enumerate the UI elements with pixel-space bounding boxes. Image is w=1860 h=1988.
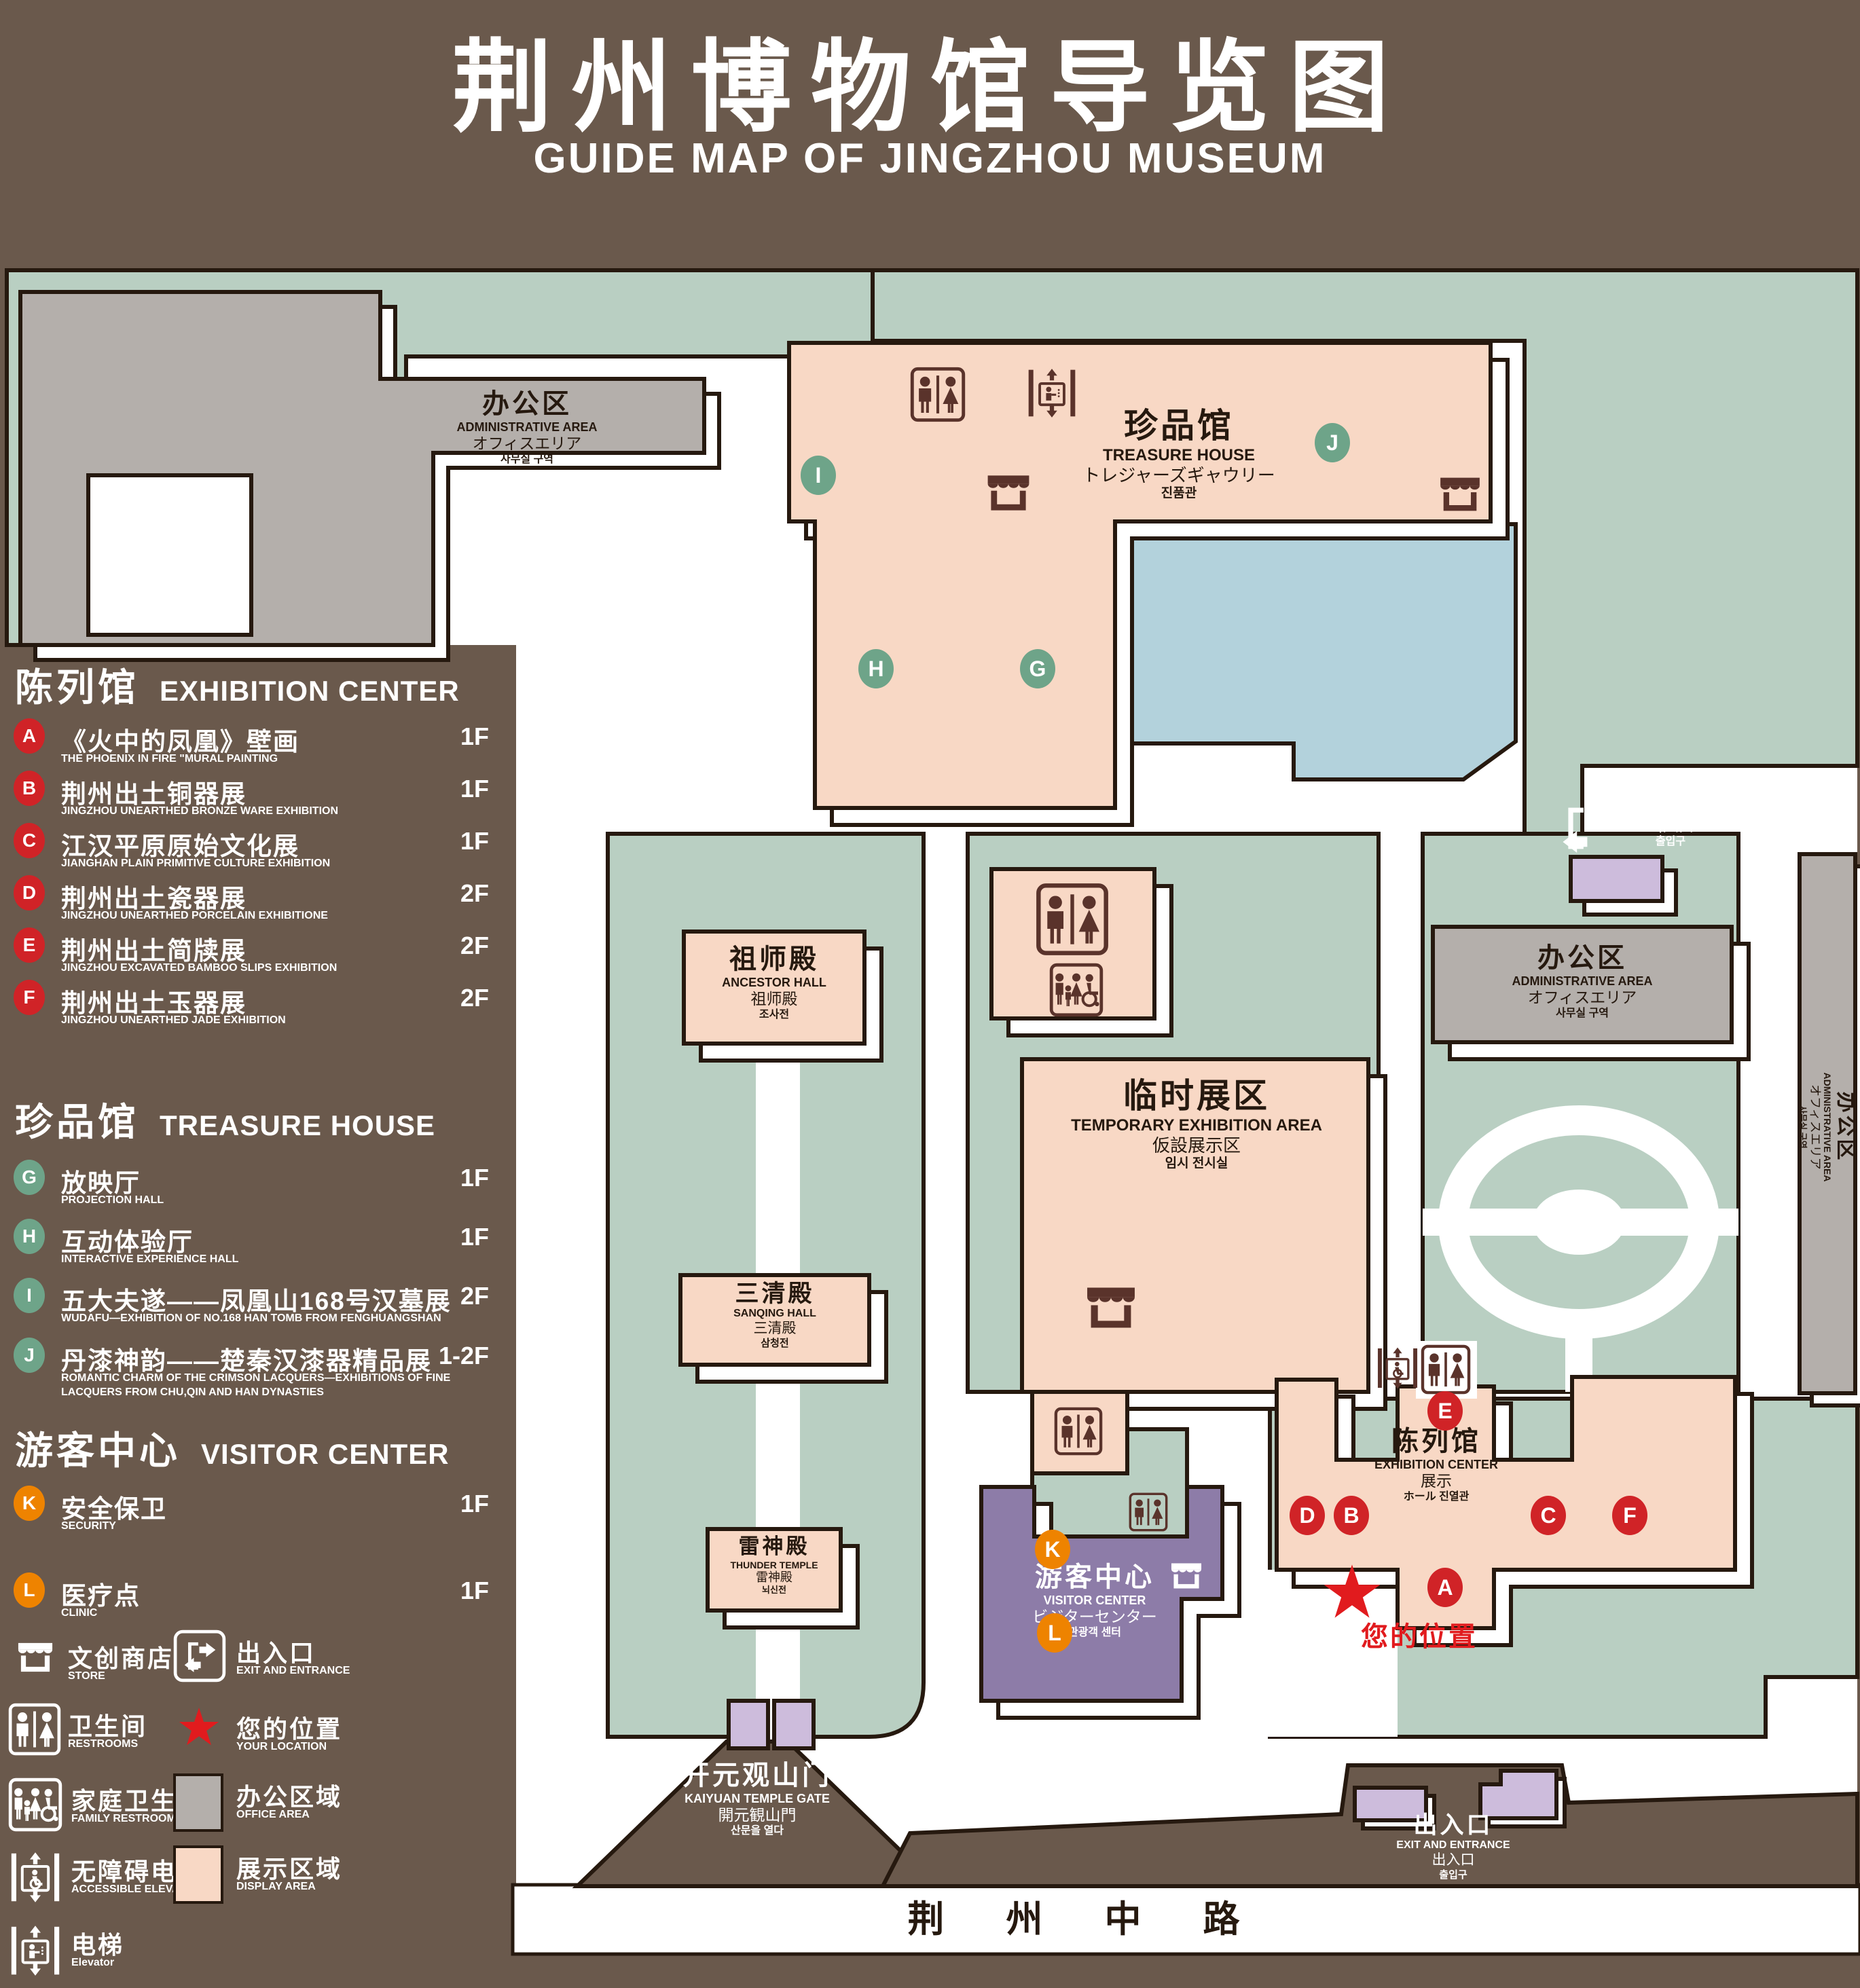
east-exit-label: 出入口EXIT AND ENTRANCE 出入口출입구 (1607, 771, 1734, 848)
map-marker-A: A (1427, 1568, 1463, 1607)
floor-badge: 1F (460, 1223, 489, 1251)
gate-pillar-east (774, 1701, 814, 1748)
temporary-annex (1032, 1392, 1127, 1473)
legend-marker: J (14, 1338, 45, 1373)
floor-badge: 2F (460, 932, 489, 960)
map-marker-G: G (1020, 649, 1055, 688)
map-marker-E: E (1427, 1391, 1463, 1431)
legend-marker: A (14, 718, 45, 754)
admin-e-label: 办公区ADMINISTRATIVE AREA オフィスエリア사무실 구역 (1512, 942, 1653, 1020)
legend-item-A: A《火中的凤凰》壁画1FTHE PHOENIX IN FIRE "MURAL P… (14, 721, 489, 771)
restrooms-icon (8, 1703, 61, 1756)
legend-marker: E (14, 927, 45, 963)
floor-badge: 1F (460, 827, 489, 855)
map-marker-C: C (1531, 1496, 1566, 1535)
legend-item-L: L医疗点1FCLINIC (14, 1575, 489, 1625)
legend-marker: L (14, 1572, 45, 1608)
exhibition-label: 陈列馆EXHIBITION CENTER 展示ホール 진열관 (1374, 1426, 1498, 1503)
legend-section-header: 陈列馆EXHIBITION CENTER (15, 657, 460, 712)
map-marker-L: L (1037, 1613, 1072, 1653)
corridor-2 (756, 1365, 800, 1529)
elevator-icon (8, 1921, 62, 1980)
east-exit-annex (1571, 857, 1662, 901)
legend-item-G: G放映厅1FPROJECTION HALL (14, 1162, 489, 1213)
admin-strip-label: 办公区ADMINISTRATIVE AREA オフィスエリア사무실 구역 (1797, 1073, 1858, 1182)
floor-badge: 1F (460, 1577, 489, 1605)
legend-item-J: J丹漆神韵——楚秦汉漆器精品展1-2FROMANTIC CHARM OF THE… (14, 1340, 489, 1391)
floor-badge: 1F (460, 775, 489, 803)
legend-marker: K (14, 1486, 45, 1521)
legend-item-F: F荆州出土玉器展2FJINGZHOU UNEARTHED JADE EXHIBI… (14, 982, 489, 1033)
legend-item-I: I五大夫遂——凤凰山168号汉墓展2FWUDAFU—EXHIBITION OF … (14, 1281, 489, 1331)
legend-section-header: 珍品馆TREASURE HOUSE (15, 1092, 435, 1147)
accessible-elevator-icon (8, 1848, 62, 1907)
floor-badge: 1F (460, 1490, 489, 1518)
admin-nw-label: 办公区ADMINISTRATIVE AREA オフィスエリア사무실 구역 (457, 388, 598, 466)
legend-item-B: B荆州出土铜器展1FJINGZHOU UNEARTHED BRONZE WARE… (14, 773, 489, 824)
floor-badge: 1F (460, 722, 489, 751)
legend-marker: B (14, 771, 45, 806)
floor-badge: 2F (460, 984, 489, 1012)
treasure-label: 珍品馆TREASURE HOUSE トレジャーズギャウリー진품관 (1082, 406, 1275, 501)
exit-icon (173, 1630, 226, 1682)
store-icon (10, 1635, 60, 1680)
gate-label: 开元观山门KAIYUAN TEMPLE GATE 開元観山門산문을 열다 (682, 1760, 832, 1837)
floor-badge: 2F (460, 879, 489, 908)
legend-marker: D (14, 875, 45, 910)
legend-marker: F (14, 980, 45, 1015)
map-marker-F: F (1612, 1496, 1647, 1535)
legend-item-H: H互动体验厅1FINTERACTIVE EXPERIENCE HALL (14, 1221, 489, 1272)
lake (1119, 524, 1516, 779)
legend-marker: I (14, 1278, 45, 1313)
your-location-label: 您的位置 (1361, 1621, 1478, 1653)
guide-map-page: 荆州博物馆导览图 GUIDE MAP OF JINGZHOU MUSEUM (0, 0, 1860, 1988)
office-area-swatch (173, 1773, 223, 1832)
gate-pillar-west (729, 1701, 768, 1748)
thunder-label: 雷神殿THUNDER TEMPLE 雷神殿뇌신전 (730, 1534, 818, 1596)
sanqing-label: 三清殿SANQING HALL 三清殿삼청전 (733, 1280, 816, 1350)
legend-item-C: C江汉平原原始文化展1FJIANGHAN PLAIN PRIMITIVE CUL… (14, 826, 489, 876)
ancestor-label: 祖师殿ANCESTOR HALL 祖师殿조사전 (722, 944, 826, 1021)
garden-center-island (1533, 1190, 1625, 1255)
family-restrooms-icon (8, 1778, 62, 1832)
map-marker-D: D (1290, 1496, 1325, 1535)
map-marker-J: J (1315, 423, 1350, 462)
display-area-swatch (173, 1845, 223, 1904)
location-star-icon (1322, 1562, 1382, 1621)
map-marker-B: B (1334, 1496, 1369, 1535)
legend-marker: H (14, 1219, 45, 1254)
floor-badge: 1-2F (439, 1342, 489, 1370)
admin-nw-courtyard (88, 475, 251, 635)
legend-section-header: 游客中心VISITOR CENTER (15, 1420, 450, 1475)
temporary-label: 临时展区TEMPORARY EXHIBITION AREA 仮設展示区임시 전시… (1071, 1076, 1322, 1171)
legend-item-K: K安全保卫1FSECURITY (14, 1488, 489, 1539)
legend-marker: C (14, 823, 45, 858)
south-exit-label: 出入口EXIT AND ENTRANCE 出入口출입구 (1396, 1811, 1510, 1881)
legend-marker: G (14, 1160, 45, 1195)
map-marker-H: H (858, 649, 894, 688)
legend-item-E: E荆州出土简牍展2FJINGZHOU EXCAVATED BAMBOO SLIP… (14, 930, 489, 980)
legend-item-D: D荆州出土瓷器展2FJINGZHOU UNEARTHED PORCELAIN E… (14, 878, 489, 928)
map-marker-K: K (1035, 1530, 1070, 1569)
corridor-1 (756, 1044, 800, 1275)
road-label: 荆 州 中 路 (907, 1898, 1265, 1942)
floor-badge: 1F (460, 1164, 489, 1192)
floor-badge: 2F (460, 1282, 489, 1310)
location-star-icon (178, 1706, 220, 1748)
map-marker-I: I (801, 456, 836, 495)
